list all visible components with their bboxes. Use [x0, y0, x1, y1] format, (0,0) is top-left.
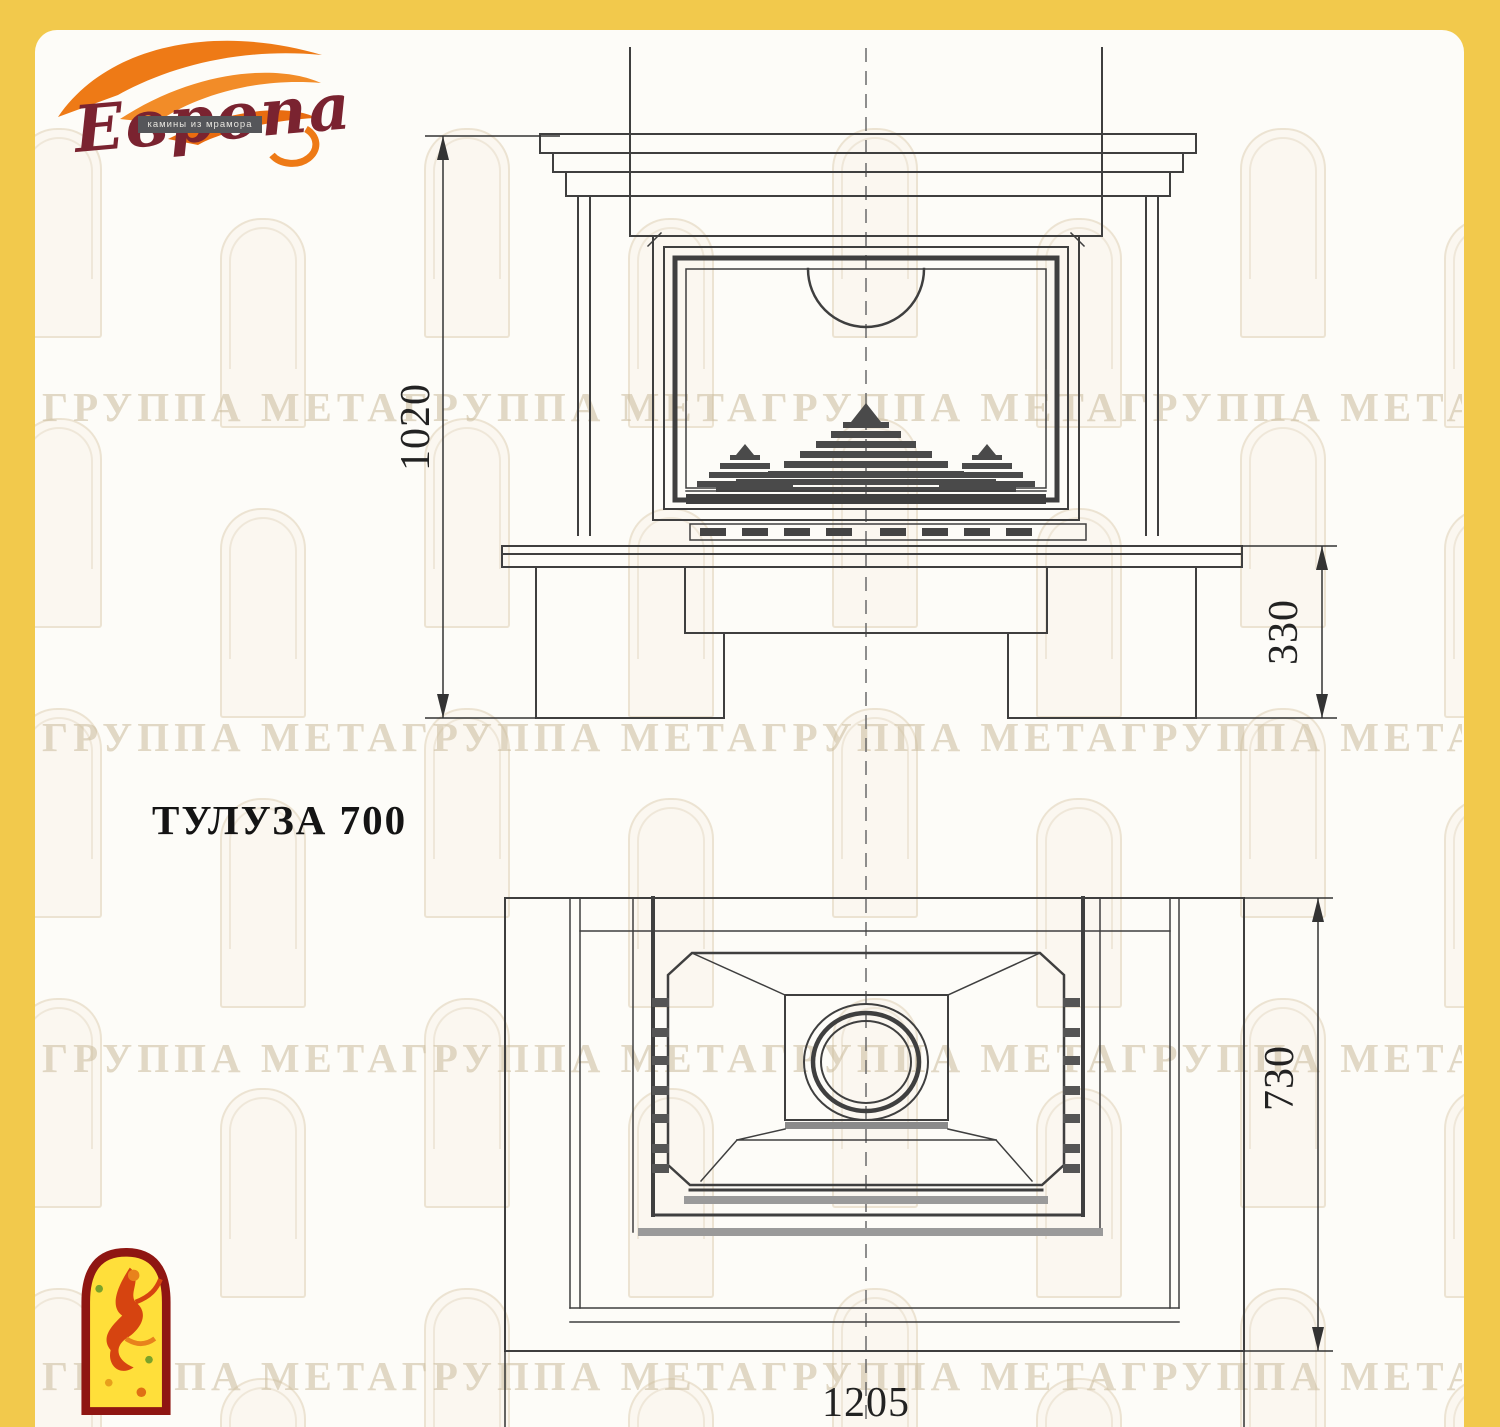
firebox-arch: [808, 269, 924, 327]
dim-label-730: 730: [1257, 1045, 1303, 1111]
fire-logs: [697, 403, 1035, 492]
brand-logo: Европа камины из мрамора: [50, 25, 340, 205]
mantel-shelf: [540, 134, 1196, 153]
meta-group-emblem: [80, 1243, 172, 1415]
dim-label-330: 330: [1261, 599, 1307, 665]
dim-label-1020: 1020: [393, 383, 439, 471]
dimension-base-height: 330: [1196, 546, 1337, 718]
front-view-drawing: [502, 48, 1242, 718]
base-foot-right: [1008, 567, 1196, 718]
dimension-plan-width: 1205: [505, 1351, 1244, 1427]
dim-label-1205: 1205: [822, 1380, 910, 1426]
brand-tagline: камины из мрамора: [138, 116, 262, 133]
dimension-plan-depth: 730: [1244, 898, 1333, 1351]
dimension-front-height: 1020: [393, 136, 560, 718]
fireplace-technical-drawing: 1020 330: [0, 0, 1500, 1427]
hearth-slab: [502, 546, 1242, 567]
vent-strip: [690, 524, 1086, 540]
page: ГРУППА МЕТАГРУППА МЕТАГРУППА МЕТАГРУППА …: [0, 0, 1500, 1427]
base-foot-left: [536, 567, 724, 718]
plan-view-drawing: [505, 898, 1244, 1351]
model-title: ТУЛУЗА 700: [152, 796, 407, 844]
